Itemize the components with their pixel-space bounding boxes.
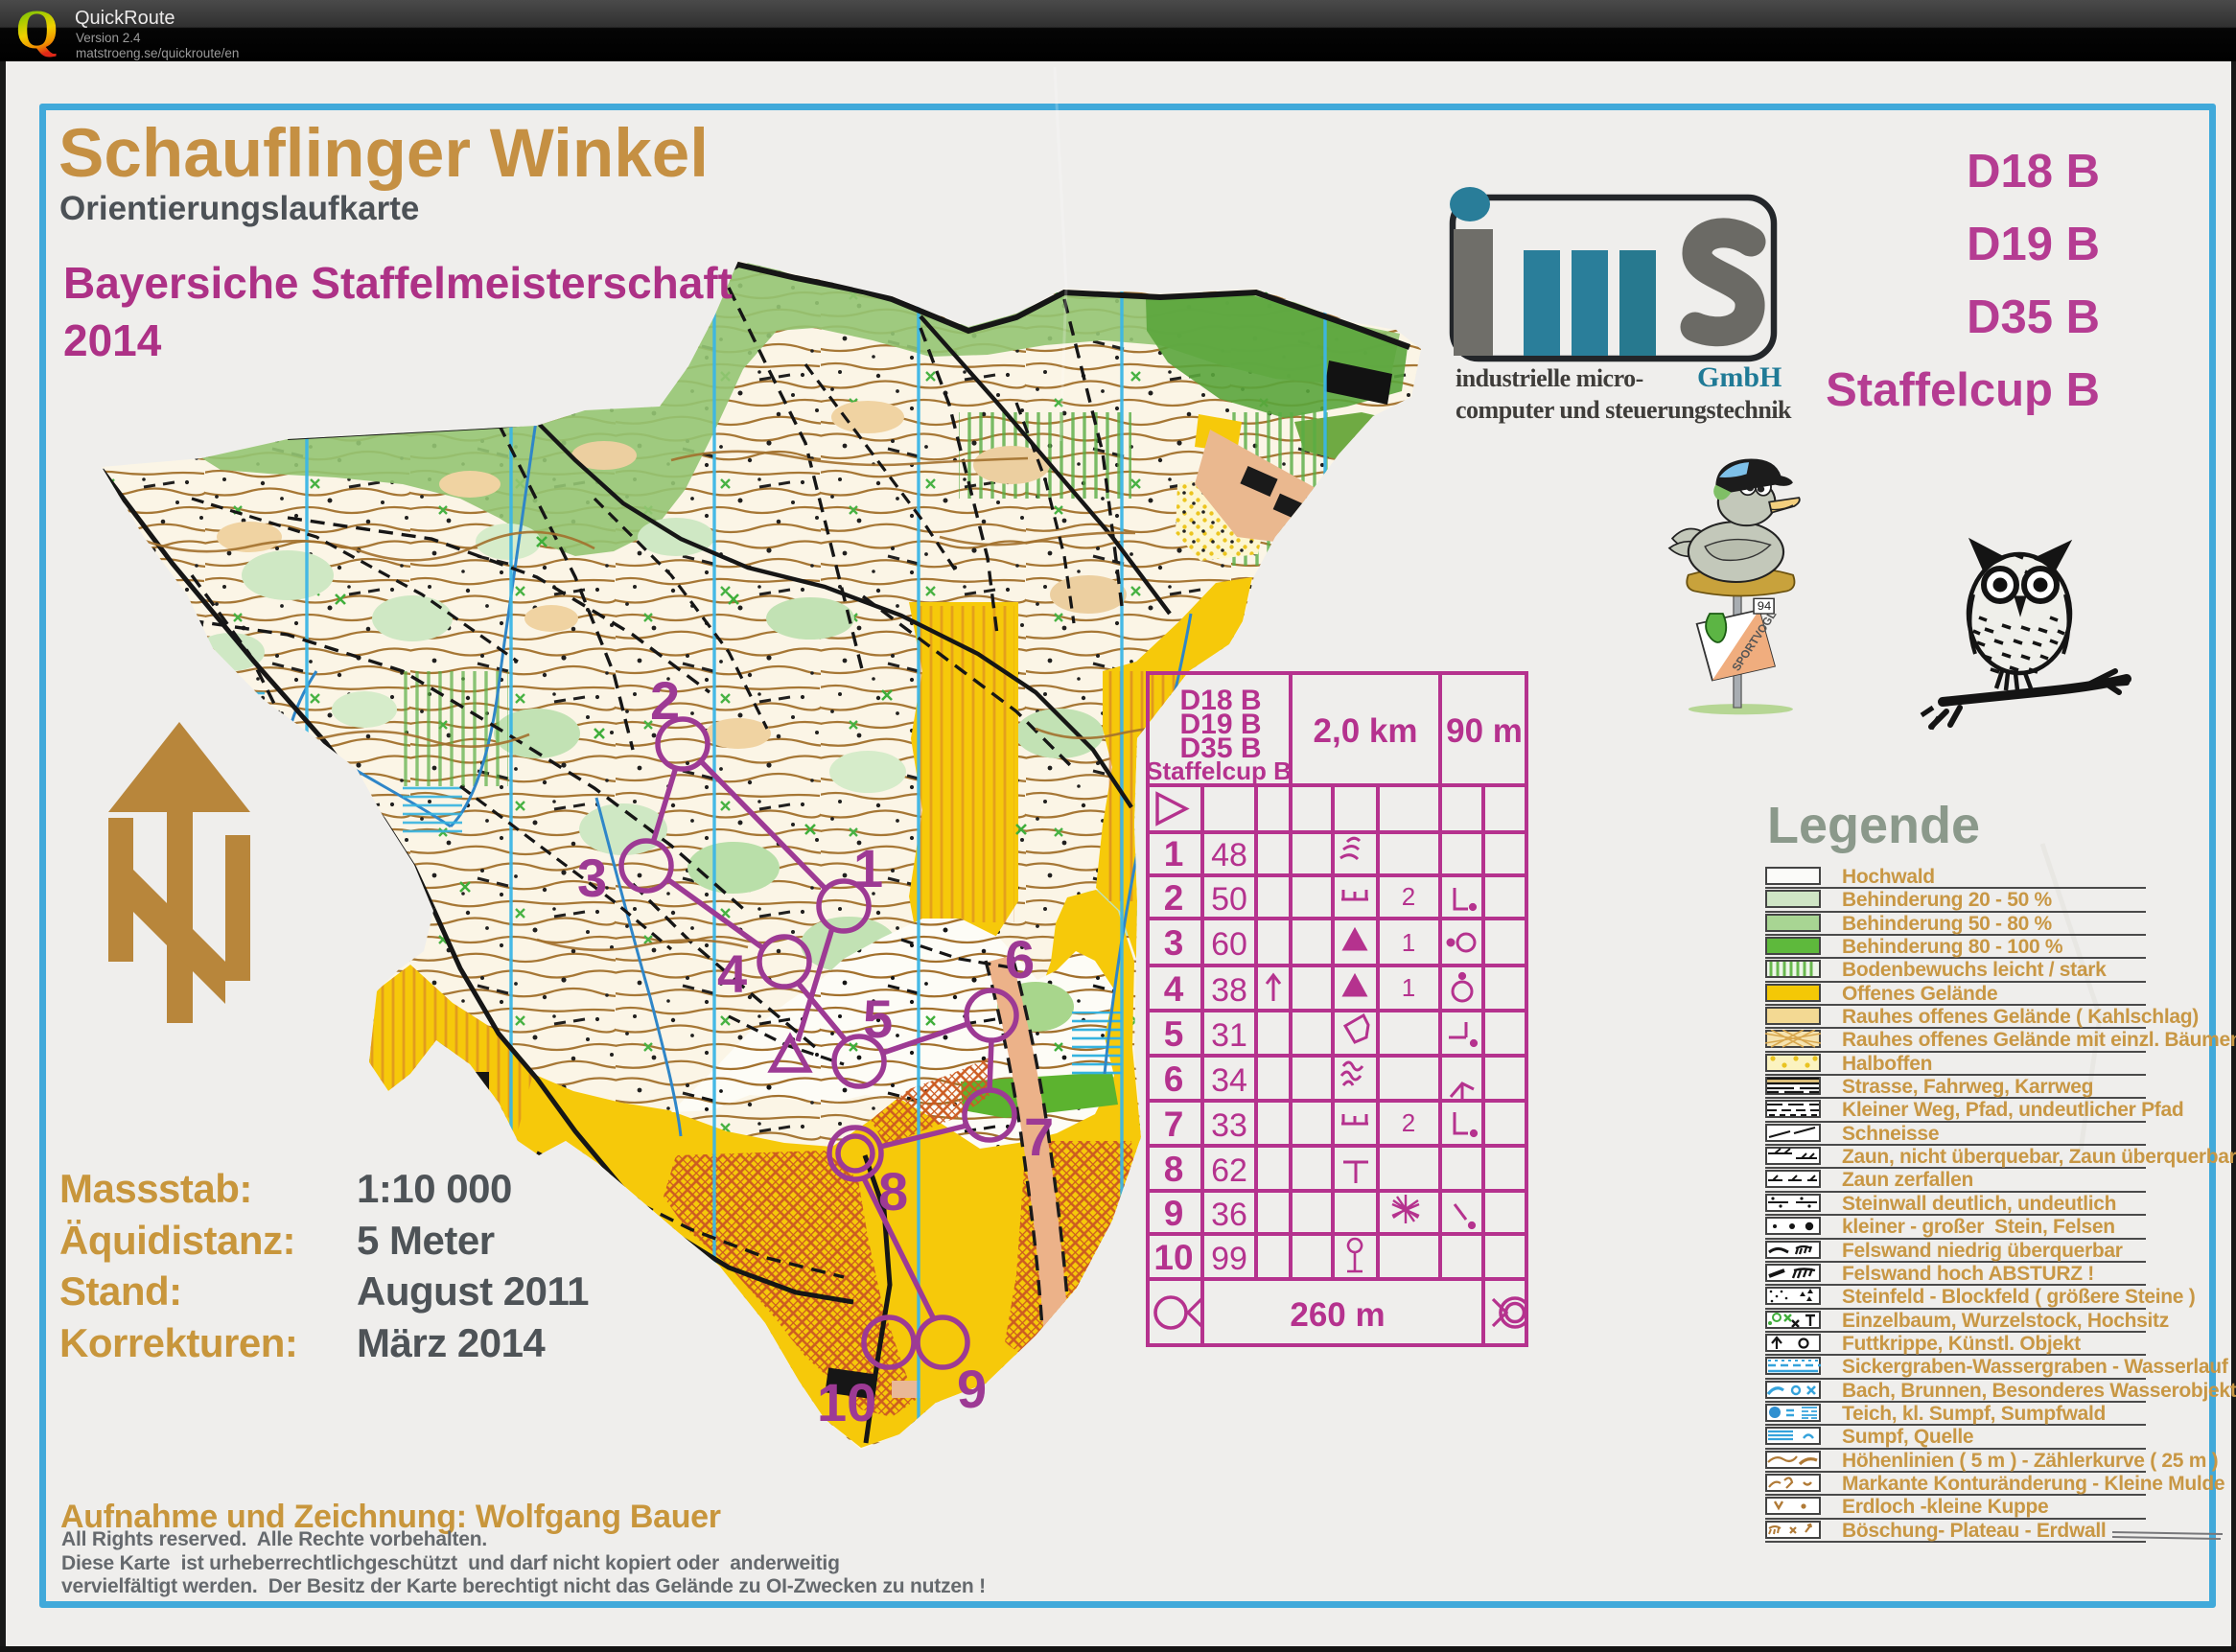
svg-text:1: 1 (1402, 973, 1415, 1002)
svg-text:33: 33 (1211, 1107, 1247, 1144)
svg-text:1: 1 (1164, 834, 1184, 873)
svg-text:5: 5 (863, 989, 893, 1049)
svg-text:31: 31 (1211, 1017, 1247, 1054)
svg-text:4: 4 (717, 943, 747, 1004)
svg-text:industrielle micro-: industrielle micro- (1456, 364, 1643, 392)
svg-text:3: 3 (577, 848, 607, 908)
svg-text:10: 10 (1153, 1238, 1193, 1277)
svg-text:9: 9 (1164, 1194, 1184, 1233)
svg-text:36: 36 (1211, 1197, 1247, 1233)
svg-text:50: 50 (1211, 881, 1247, 918)
svg-text:48: 48 (1211, 837, 1247, 873)
svg-text:2: 2 (650, 670, 680, 731)
svg-text:7: 7 (1164, 1105, 1184, 1144)
svg-text:9: 9 (957, 1359, 987, 1419)
svg-text:GmbH: GmbH (1697, 361, 1782, 393)
svg-text:7: 7 (1024, 1106, 1054, 1167)
svg-text:60: 60 (1211, 926, 1247, 963)
svg-text:4: 4 (1164, 969, 1184, 1009)
svg-text:1: 1 (1402, 928, 1415, 957)
svg-text:90 m: 90 m (1446, 712, 1523, 750)
svg-text:5: 5 (1164, 1014, 1184, 1054)
svg-text:8: 8 (1164, 1150, 1184, 1189)
svg-text:260 m: 260 m (1290, 1296, 1385, 1334)
svg-text:computer und steuerungstechnik: computer und steuerungstechnik (1456, 396, 1792, 424)
svg-text:10: 10 (817, 1372, 876, 1432)
svg-text:34: 34 (1211, 1062, 1247, 1099)
svg-text:99: 99 (1211, 1241, 1247, 1277)
svg-text:Staffelcup B: Staffelcup B (1146, 756, 1292, 785)
svg-text:6: 6 (1005, 929, 1035, 989)
svg-text:6: 6 (1164, 1059, 1184, 1099)
svg-text:8: 8 (878, 1161, 908, 1222)
svg-text:2: 2 (1402, 882, 1415, 911)
svg-text:62: 62 (1211, 1152, 1247, 1189)
svg-text:2: 2 (1164, 878, 1184, 918)
svg-text:2,0 km: 2,0 km (1314, 712, 1418, 750)
svg-text:3: 3 (1164, 923, 1184, 963)
svg-text:1: 1 (853, 838, 883, 898)
svg-text:2: 2 (1402, 1108, 1415, 1137)
svg-text:94: 94 (1758, 600, 1772, 613)
svg-text:38: 38 (1211, 972, 1247, 1009)
